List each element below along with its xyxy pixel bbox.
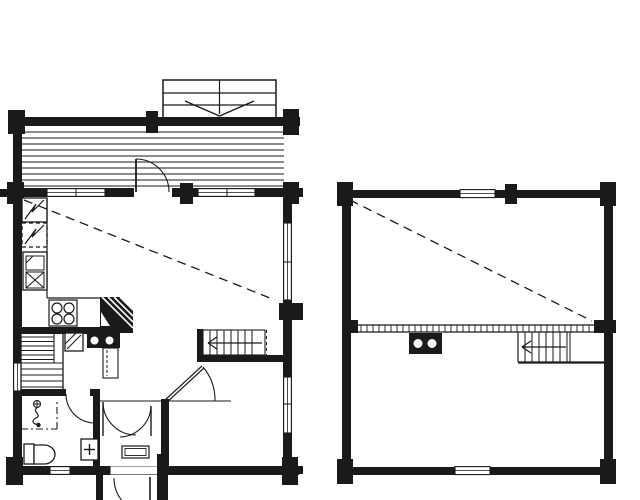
gf-porch-wall <box>96 475 103 500</box>
uf-log-post <box>337 459 353 484</box>
gf-door-arc <box>203 367 215 401</box>
floor-plan-canvas <box>0 0 640 500</box>
gf-door-arc <box>120 406 151 437</box>
gf-door-leaf <box>164 366 202 401</box>
gf-stove-burner <box>52 303 62 313</box>
gf-bath-top-wall <box>21 389 66 396</box>
gf-hall-bedroom-wall <box>161 399 169 466</box>
gf-entry-opening <box>110 466 157 474</box>
gf-log-stub <box>293 188 303 197</box>
gf-stove-burner <box>64 314 74 324</box>
gf-shower-hose <box>33 408 38 424</box>
uf-log-post <box>337 182 353 206</box>
gf-chimney-flue <box>91 337 99 345</box>
gf-log-post <box>180 183 193 204</box>
uf-railing-post <box>594 320 616 333</box>
gf-deck-door-opening <box>134 188 172 198</box>
gf-bath-top-wall <box>90 389 100 396</box>
gf-porch-wall <box>157 475 168 500</box>
gf-sink-unit <box>23 252 47 290</box>
uf-chimney-flue <box>414 339 423 348</box>
uf-stair-arrow <box>522 341 531 347</box>
uf-log-post <box>600 459 616 484</box>
gf-deck-door-arc <box>136 159 169 192</box>
gf-stair-wall <box>197 355 292 362</box>
uf-chimney-flue <box>428 339 437 348</box>
uf-railing-post <box>344 320 358 333</box>
gf-shower-head <box>36 423 40 427</box>
gf-toilet-tank <box>24 444 34 464</box>
gf-fireplace <box>100 297 133 333</box>
gf-log-post <box>6 457 23 485</box>
uf-log-post <box>505 184 517 204</box>
gf-stove-burner <box>64 303 74 313</box>
gf-toilet-bowl <box>34 445 55 464</box>
gf-log-post <box>146 111 158 133</box>
gf-entry-door-arc <box>114 478 150 500</box>
gf-loft-edge-dashed <box>24 200 275 300</box>
gf-log-post <box>283 109 299 135</box>
gf-chimney-flue <box>106 337 114 345</box>
gf-kitchen-wall <box>21 327 101 334</box>
uf-loft-edge-dashed <box>350 200 592 321</box>
floor-plan-drawing <box>0 0 640 500</box>
gf-stove-burner <box>52 314 62 324</box>
uf-log-post <box>600 182 616 206</box>
gf-door-leaf <box>166 368 204 403</box>
gf-closet <box>122 446 149 458</box>
gf-door-arc <box>103 402 136 435</box>
gf-stair-end-wall <box>197 329 203 357</box>
gf-hall-cabinet <box>103 348 118 378</box>
gf-door-arc <box>66 394 95 423</box>
gf-log-post <box>279 303 303 320</box>
gf-left-wall <box>13 117 22 475</box>
gf-log-stub <box>292 466 303 474</box>
uf-stair-arrow <box>522 347 531 353</box>
